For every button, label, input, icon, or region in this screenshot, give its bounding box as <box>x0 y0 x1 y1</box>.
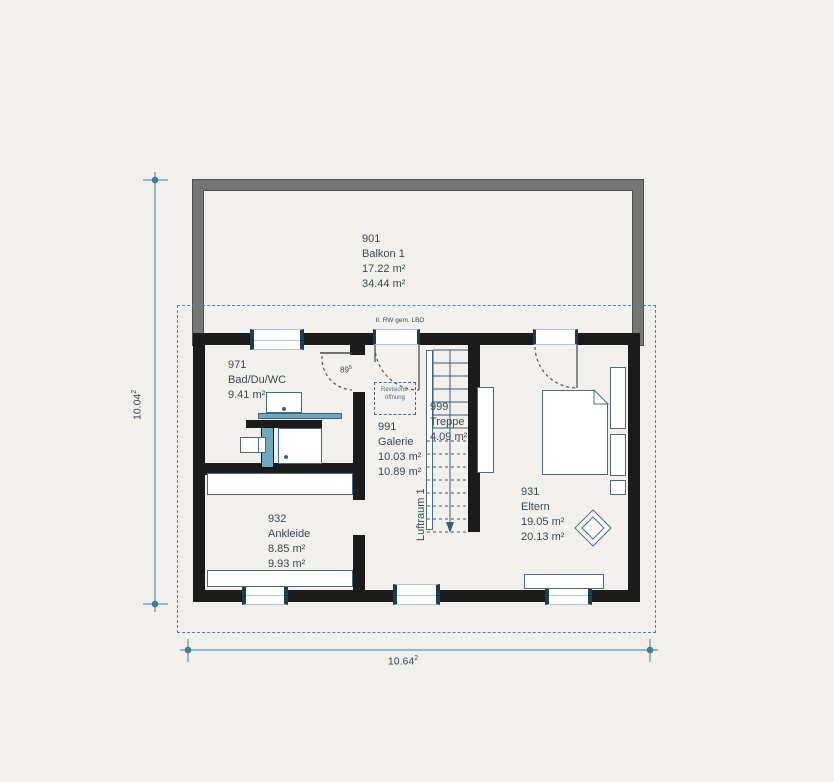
revision-opening-label: öffnung <box>375 395 415 403</box>
room-area: 9.41 m² <box>228 388 286 403</box>
room-area: 34.44 m² <box>362 277 405 292</box>
dimension-line-height <box>143 172 168 612</box>
room-label-treppe: 999 Treppe 4.09 m² <box>430 400 467 445</box>
revision-opening-label: Revisions- <box>375 387 415 395</box>
room-label-eltern: 931 Eltern 19.05 m² 20.13 m² <box>521 485 564 545</box>
armchair-symbol <box>575 510 611 546</box>
room-number: 991 <box>378 420 421 435</box>
room-name: Balkon 1 <box>362 247 405 262</box>
room-number: 999 <box>430 400 467 415</box>
room-area: 19.05 m² <box>521 515 564 530</box>
void-label: Luftraum 1 <box>414 488 429 541</box>
room-area: 9.93 m² <box>268 557 310 572</box>
room-number: 971 <box>228 358 286 373</box>
room-area: 17.22 m² <box>362 262 405 277</box>
revision-opening-box: Revisions- öffnung <box>374 382 416 415</box>
dimension-width-label: 10.642 <box>363 655 443 668</box>
room-area: 10.03 m² <box>378 450 421 465</box>
dimension-height-label: 10.042 <box>131 390 144 420</box>
room-number: 932 <box>268 512 310 527</box>
room-label-ankleide: 932 Ankleide 8.85 m² 9.93 m² <box>268 512 310 572</box>
room-number: 901 <box>362 232 405 247</box>
room-area: 4.09 m² <box>430 430 467 445</box>
room-name: Treppe <box>430 415 467 430</box>
room-label-galerie: 991 Galerie 10.03 m² 10.89 m² <box>378 420 421 480</box>
room-name: Galerie <box>378 435 421 450</box>
room-label-balkon: 901 Balkon 1 17.22 m² 34.44 m² <box>362 232 405 292</box>
room-name: Ankleide <box>268 527 310 542</box>
room-area: 10.89 m² <box>378 465 421 480</box>
bed-fold <box>594 390 608 404</box>
room-label-bad: 971 Bad/Du/WC 9.41 m² <box>228 358 286 403</box>
room-name: Bad/Du/WC <box>228 373 286 388</box>
stair-direction-arrow <box>446 522 454 533</box>
room-number: 931 <box>521 485 564 500</box>
door-swing-arcs <box>320 345 577 390</box>
room-name: Eltern <box>521 500 564 515</box>
room-area: 20.13 m² <box>521 530 564 545</box>
escape-route-note: II. RW gem. LBO <box>350 317 450 325</box>
room-area: 8.85 m² <box>268 542 310 557</box>
door-width-label: 895 <box>340 365 352 375</box>
floor-plan-canvas: 901 Balkon 1 17.22 m² 34.44 m² 971 Bad/D… <box>0 0 834 782</box>
